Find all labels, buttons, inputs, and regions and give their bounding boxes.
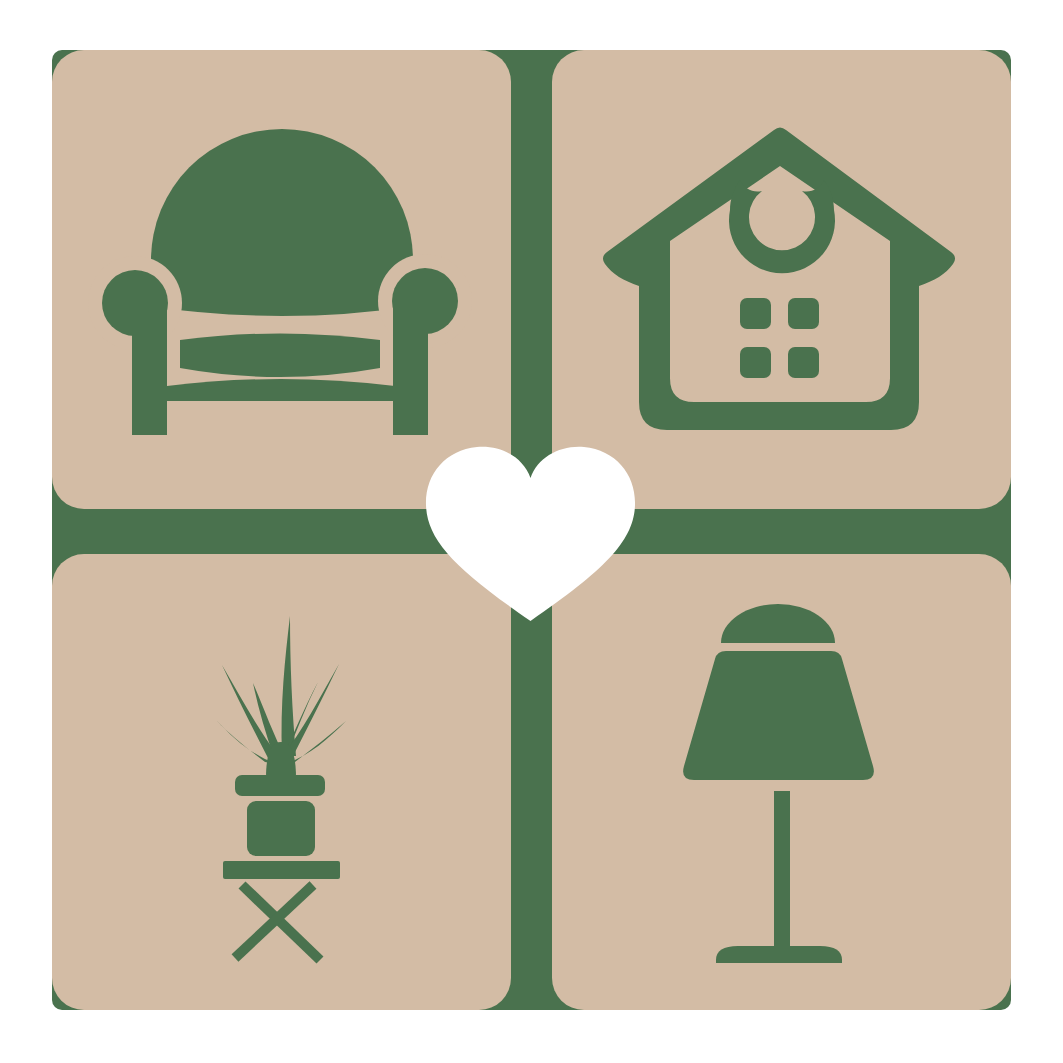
tile-house bbox=[552, 50, 1011, 509]
heart-icon bbox=[423, 445, 638, 623]
house-icon bbox=[552, 50, 1011, 509]
logo-canvas bbox=[0, 0, 1063, 1063]
tile-armchair bbox=[52, 50, 511, 509]
armchair-icon bbox=[52, 50, 511, 509]
